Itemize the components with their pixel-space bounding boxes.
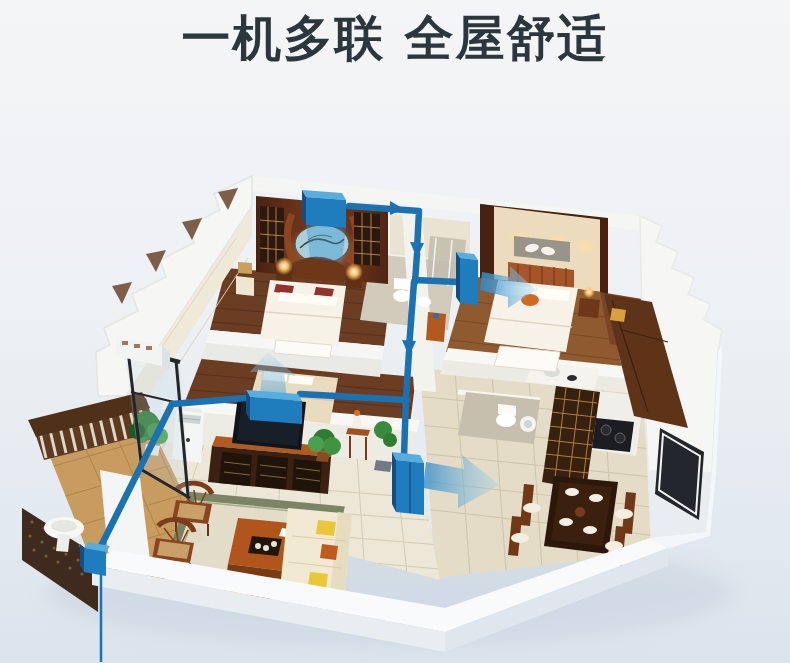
toilet [496,413,516,427]
balcony-junction-box [80,542,110,576]
toilet [393,290,411,302]
floorplan-illustration [0,0,790,663]
door-frame [480,204,494,280]
cooktop [592,418,634,452]
ensuite-bathroom [458,392,540,444]
sink [417,297,431,307]
lattice-panel-right [354,212,380,266]
bedside-lamp [275,257,293,275]
bedside-lamp [345,263,363,281]
hero-banner: 一机多联 全屋舒适 [0,0,790,663]
